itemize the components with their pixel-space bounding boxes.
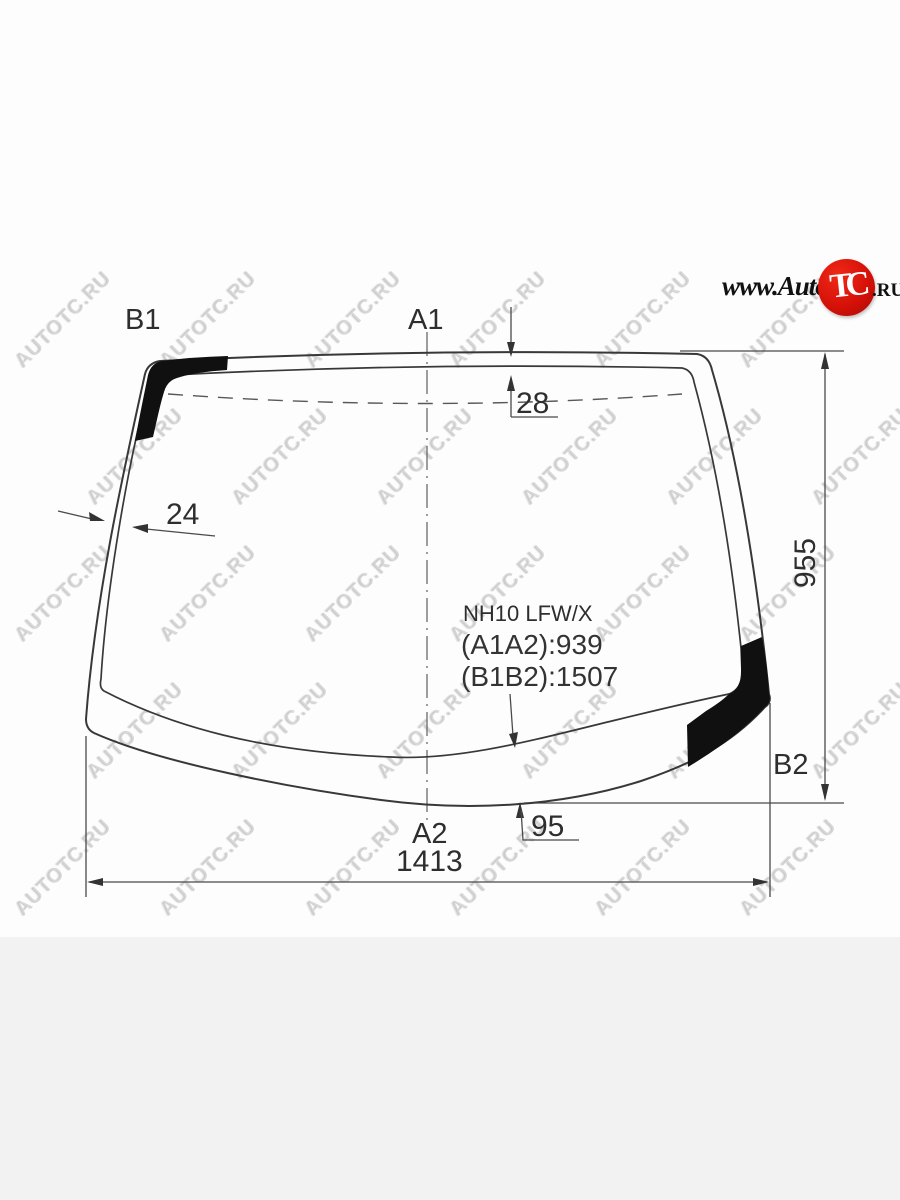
dim-label-1413: 1413 bbox=[396, 847, 463, 877]
autotc-logo-badge-icon: TC bbox=[818, 259, 875, 316]
dim-label-955: 955 bbox=[791, 528, 821, 598]
dim-24-outer-leader bbox=[58, 511, 92, 519]
dim-1413 bbox=[87, 878, 769, 886]
dim-label-95: 95 bbox=[531, 812, 564, 842]
arrow-up-icon bbox=[507, 375, 515, 391]
windshield-inner-outline bbox=[100, 366, 742, 757]
arrow-left-icon bbox=[87, 878, 103, 886]
label-b1: B1 bbox=[125, 306, 160, 335]
dim-label-24: 24 bbox=[166, 500, 199, 530]
arrow-left-icon bbox=[132, 524, 148, 533]
label-a1: A1 bbox=[408, 306, 443, 335]
part-dim-b1b2: (B1B2):1507 bbox=[461, 663, 618, 691]
windshield-diagram bbox=[0, 0, 900, 1200]
arrow-down-icon bbox=[507, 342, 515, 357]
part-text-leader bbox=[509, 694, 518, 748]
autotc-logo: www.Auto TC .RU bbox=[720, 255, 900, 319]
logo-text-prefix: www.Auto bbox=[722, 271, 828, 302]
windshield-outer-outline bbox=[86, 352, 770, 806]
part-leader-line bbox=[510, 694, 513, 736]
logo-badge-text: TC bbox=[816, 264, 877, 308]
product-image: AUTOTC.RUAUTOTC.RUAUTOTC.RUAUTOTC.RUAUTO… bbox=[0, 0, 900, 1200]
label-b2: B2 bbox=[773, 751, 808, 780]
frit-band-bottom-right bbox=[687, 637, 770, 767]
arrow-right-icon bbox=[89, 512, 105, 521]
logo-text-suffix: .RU bbox=[872, 280, 900, 302]
part-dim-a1a2: (A1A2):939 bbox=[461, 631, 603, 659]
frit-boundary-dashed-line bbox=[168, 394, 682, 404]
frit-band-top-left bbox=[135, 356, 228, 441]
arrow-down-icon bbox=[821, 784, 829, 801]
dim-label-28: 28 bbox=[516, 389, 549, 419]
dim-955 bbox=[821, 352, 829, 801]
arrow-right-icon bbox=[753, 878, 769, 886]
arrow-up-icon bbox=[821, 352, 829, 369]
part-code: NH10 LFW/X bbox=[463, 603, 593, 625]
